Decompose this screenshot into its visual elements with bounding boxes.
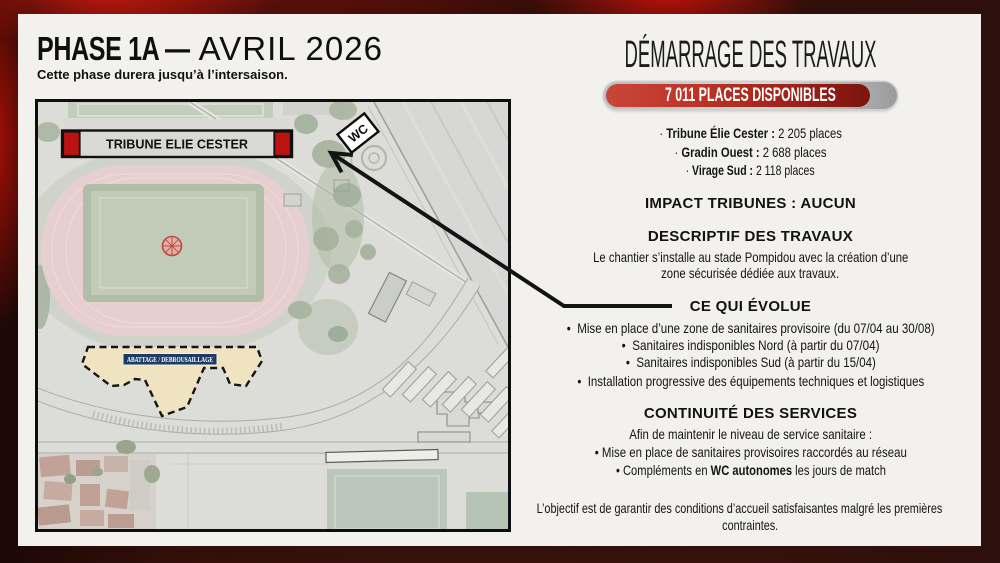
- svg-text:DÉMARRAGE DES TRAVAUX: DÉMARRAGE DES TRAVAUX: [625, 33, 877, 76]
- svg-text:TRIBUNE ELIE CESTER: TRIBUNE ELIE CESTER: [106, 137, 249, 152]
- svg-text:ABATTAGE / DEBROUSAILLAGE: ABATTAGE / DEBROUSAILLAGE: [127, 356, 213, 364]
